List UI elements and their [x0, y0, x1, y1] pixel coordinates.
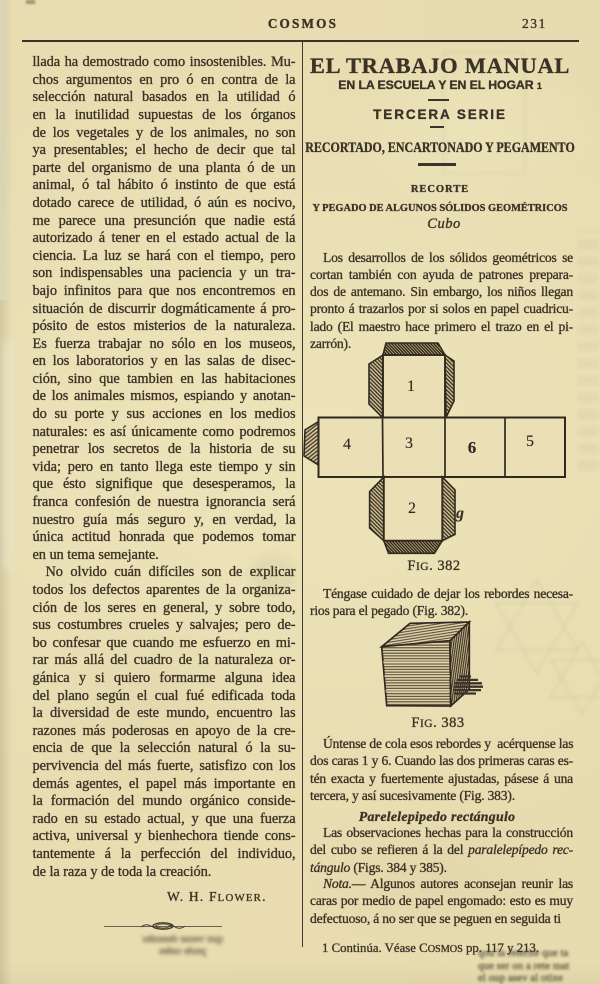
svg-text:2: 2: [408, 500, 416, 517]
svg-text:4: 4: [343, 436, 351, 453]
svg-text:1: 1: [407, 378, 415, 395]
svg-text:3: 3: [405, 435, 413, 452]
svg-text:6: 6: [468, 438, 477, 457]
svg-text:g: g: [455, 505, 464, 522]
svg-text:5: 5: [526, 433, 534, 450]
